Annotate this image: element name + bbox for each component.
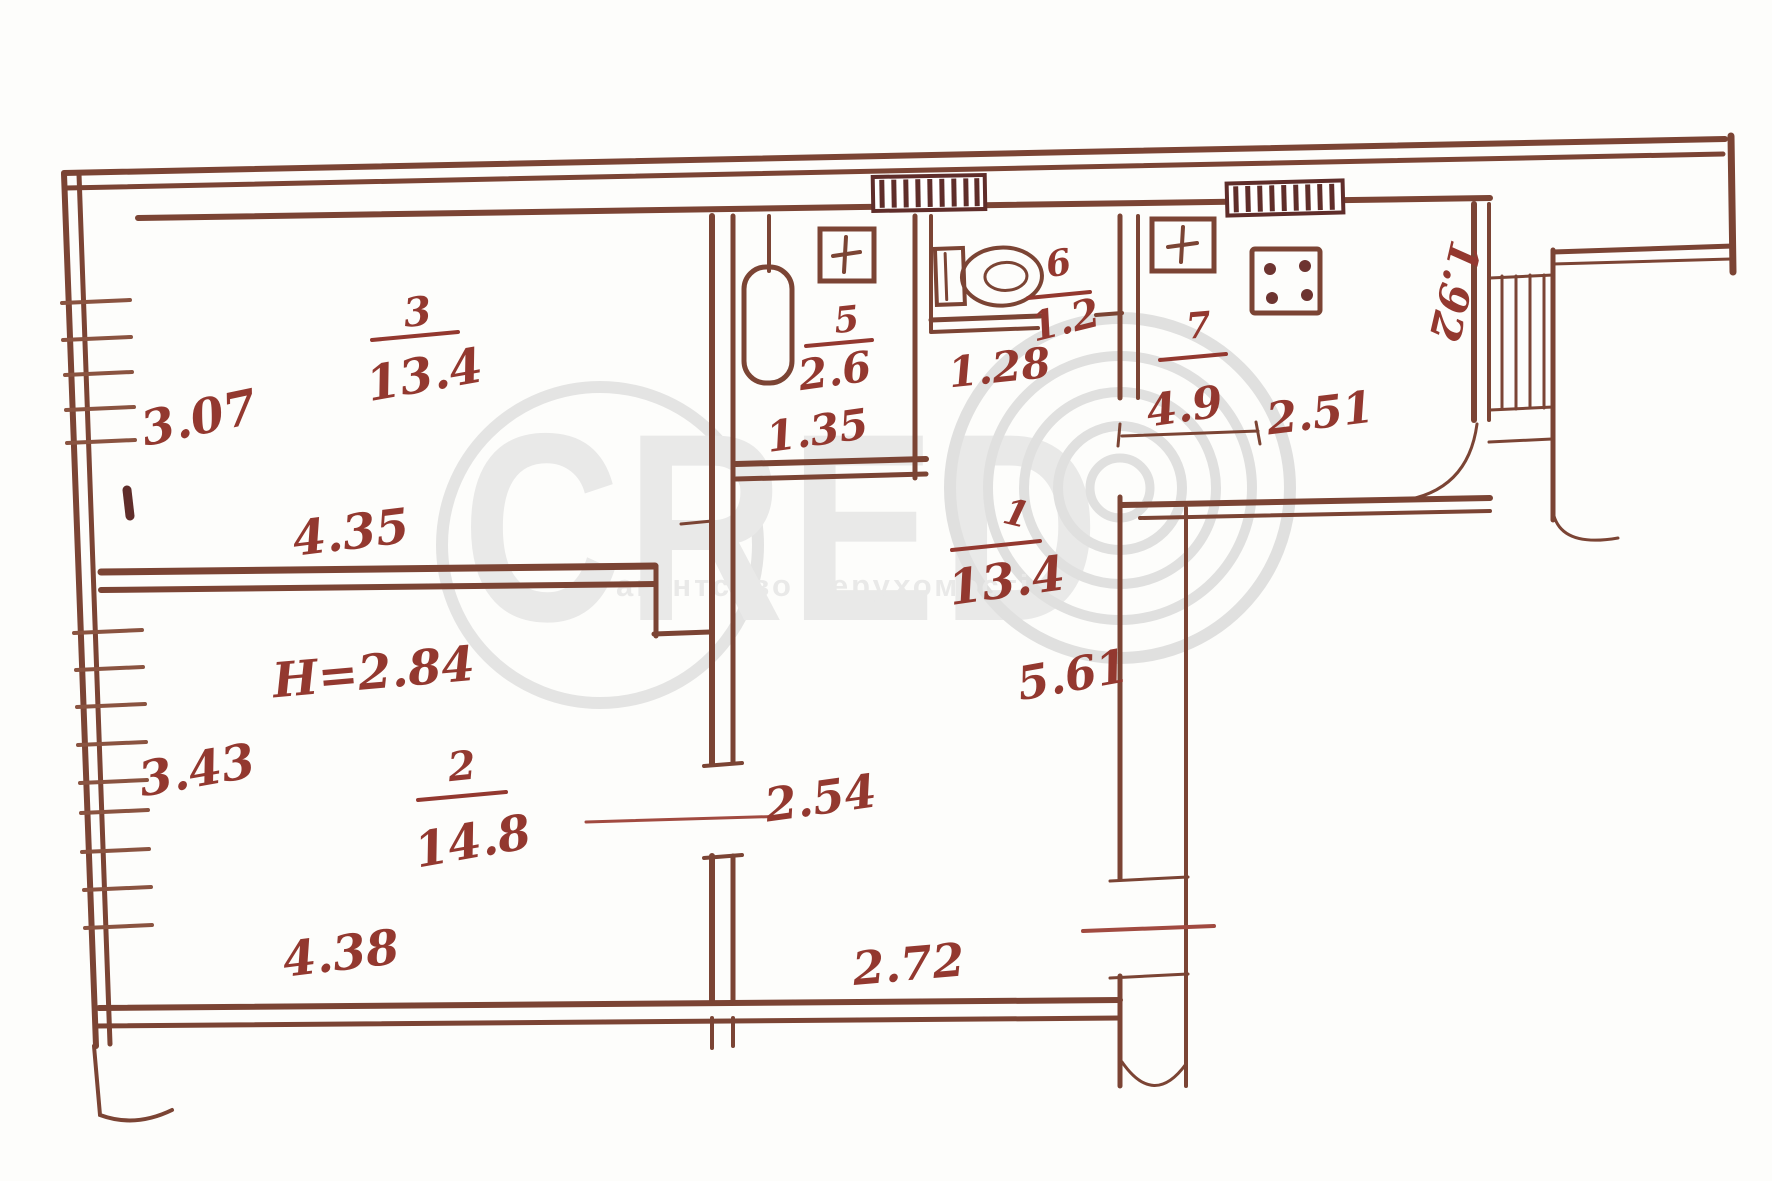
kitchen-fraction-bar bbox=[1160, 354, 1226, 360]
wall-building-right-inner bbox=[1553, 259, 1731, 264]
wall-balcony-flourish bbox=[1553, 512, 1618, 540]
room-2-width-label: 4.38 bbox=[280, 919, 403, 989]
ceiling-height-label: Н=2.84 bbox=[268, 636, 477, 710]
door-leaf-room2 bbox=[586, 816, 790, 822]
hall-width-mid-label: 2.54 bbox=[760, 763, 879, 832]
kitchen-width-label: 2.51 bbox=[1263, 382, 1377, 446]
vent-shaft-hatch-left bbox=[873, 175, 986, 211]
bathroom-area-label: 2.6 bbox=[794, 342, 874, 401]
entry-door-leaf bbox=[1083, 926, 1214, 931]
wall-wc-bottom bbox=[931, 316, 1040, 320]
wall-building-top bbox=[64, 139, 1725, 173]
kitchen-number-label: 7 bbox=[1184, 304, 1213, 348]
vent-shaft-hatch-right bbox=[1227, 180, 1344, 215]
room-3-width-label: 4.35 bbox=[289, 498, 412, 568]
bathroom-number-label: 5 bbox=[832, 298, 861, 342]
vent-cross-icon-kitchen bbox=[1152, 219, 1214, 271]
wall-bottom-inner bbox=[97, 1018, 1120, 1026]
balcony-railing bbox=[1490, 275, 1553, 410]
wall-left-flourish bbox=[94, 1046, 172, 1120]
window-hatch-left bbox=[62, 300, 152, 928]
wall-wc-bottom2 bbox=[931, 328, 1038, 332]
floorplan-scan: CRED агентство Нерухомості bbox=[0, 0, 1772, 1181]
stove-icon bbox=[1252, 249, 1320, 313]
balcony-door-tick bbox=[1489, 439, 1552, 442]
wall-building-right bbox=[1553, 246, 1733, 252]
room-2-area-label: 14.8 bbox=[410, 804, 535, 879]
wall-divider-jog-h bbox=[654, 632, 710, 634]
wall-building-endcap bbox=[1731, 136, 1733, 272]
radiator-mark bbox=[127, 490, 130, 516]
wall-left-inner bbox=[79, 174, 110, 1044]
entry-door-arc bbox=[1122, 1062, 1186, 1086]
wall-left-outer bbox=[64, 174, 96, 1046]
kitchen-area-label: 4.9 bbox=[1143, 376, 1226, 437]
water-heater-icon bbox=[744, 216, 792, 383]
vent-cross-icon-bathroom bbox=[820, 229, 874, 281]
room2-fraction-bar bbox=[418, 792, 506, 800]
room-3-number-label: 3 bbox=[401, 287, 434, 337]
balcony-door-arc bbox=[1400, 424, 1477, 501]
kitchen-depth-label: 1.92 bbox=[1419, 236, 1490, 347]
wc-number-label: 6 bbox=[1043, 241, 1075, 287]
hall-width-bottom-label: 2.72 bbox=[849, 932, 966, 996]
room-3-depth-label: 3.07 bbox=[136, 379, 262, 458]
wall-bottom bbox=[99, 1000, 1120, 1008]
wall-kitchen-bottom2 bbox=[1140, 511, 1490, 518]
floor-plan-drawing: CRED агентство Нерухомості bbox=[0, 0, 1772, 1181]
room-2-number-label: 2 bbox=[444, 741, 478, 791]
room-2-depth-label: 3.43 bbox=[134, 733, 259, 808]
